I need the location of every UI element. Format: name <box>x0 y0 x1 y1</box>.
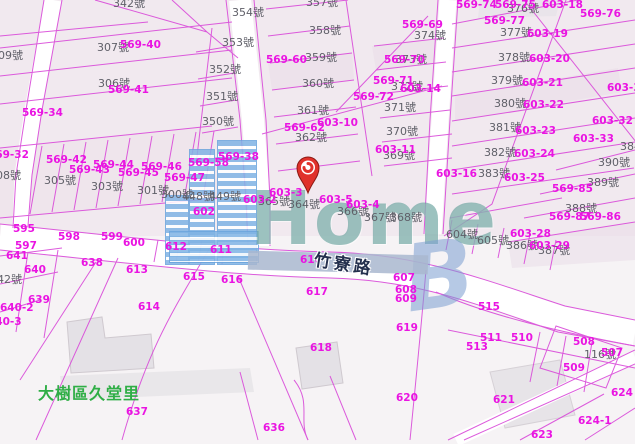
location-pin[interactable] <box>293 153 323 195</box>
cadastral-map[interactable]: Home B 竹寮路 342號354號353號352號351號350號309號3… <box>0 0 635 444</box>
district-label: 大樹區久堂里 <box>38 386 140 402</box>
map-canvas <box>0 0 635 444</box>
